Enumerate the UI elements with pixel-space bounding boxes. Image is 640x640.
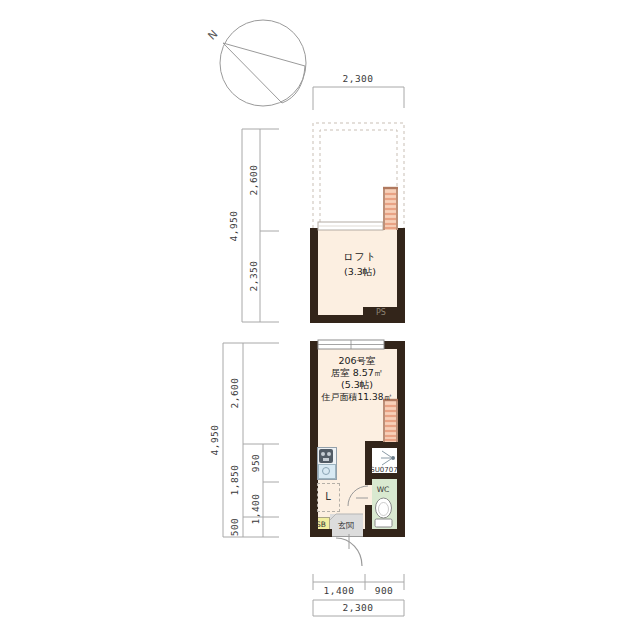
dim-lower-sub-upper: 950 (251, 454, 261, 473)
wc-label: WC (377, 486, 390, 494)
shoebox-label: SB (316, 521, 326, 529)
loft-ladder-icon (383, 187, 398, 230)
entrance-label: 玄関 (338, 522, 354, 530)
dim-lower-sub-lower: 1,400 (251, 493, 261, 524)
entrance-door-arc (336, 534, 362, 566)
pipe-space-label: PS (376, 309, 386, 317)
laundry-label: L (325, 492, 331, 502)
dim-top-width: 2,300 (342, 74, 373, 84)
north-arrow-icon (220, 20, 306, 106)
dim-lower-entry: 500 (230, 518, 240, 537)
dim-upper-loft: 2,350 (249, 260, 259, 291)
dim-bottom-left: 1,400 (323, 586, 354, 596)
room-size-label: (5.3帖) (341, 380, 373, 390)
floor-plan: N 2,300 4,950 2,600 2,350 ロフト (3.3帖) PS … (0, 0, 640, 640)
toilet-icon (375, 498, 392, 527)
room-area-label: 居室 8.57㎡ (331, 368, 384, 378)
wc-door-arc (348, 486, 368, 506)
unit-number-label: 206号室 (338, 356, 375, 366)
loft-edge-band (318, 222, 383, 230)
shower-icon (381, 451, 395, 465)
total-area-label: 住戸面積11.38㎡ (322, 393, 393, 402)
dim-bottom-right: 900 (375, 586, 394, 596)
dim-upper-total: 4,950 (229, 210, 239, 241)
dim-lower-mid: 1,850 (230, 464, 240, 495)
loft-size-label: (3.3帖) (344, 267, 376, 277)
window-icon (318, 340, 384, 349)
shower-unit-label: SU0707 (370, 467, 397, 474)
dim-upper-void: 2,600 (249, 164, 259, 195)
dim-lower-room: 2,600 (230, 377, 240, 408)
room-ladder-icon (383, 399, 398, 442)
dim-lower-total: 4,950 (210, 424, 220, 455)
plan-linework (0, 0, 640, 640)
loft-label: ロフト (343, 252, 377, 262)
dim-bottom-total: 2,300 (342, 603, 373, 613)
